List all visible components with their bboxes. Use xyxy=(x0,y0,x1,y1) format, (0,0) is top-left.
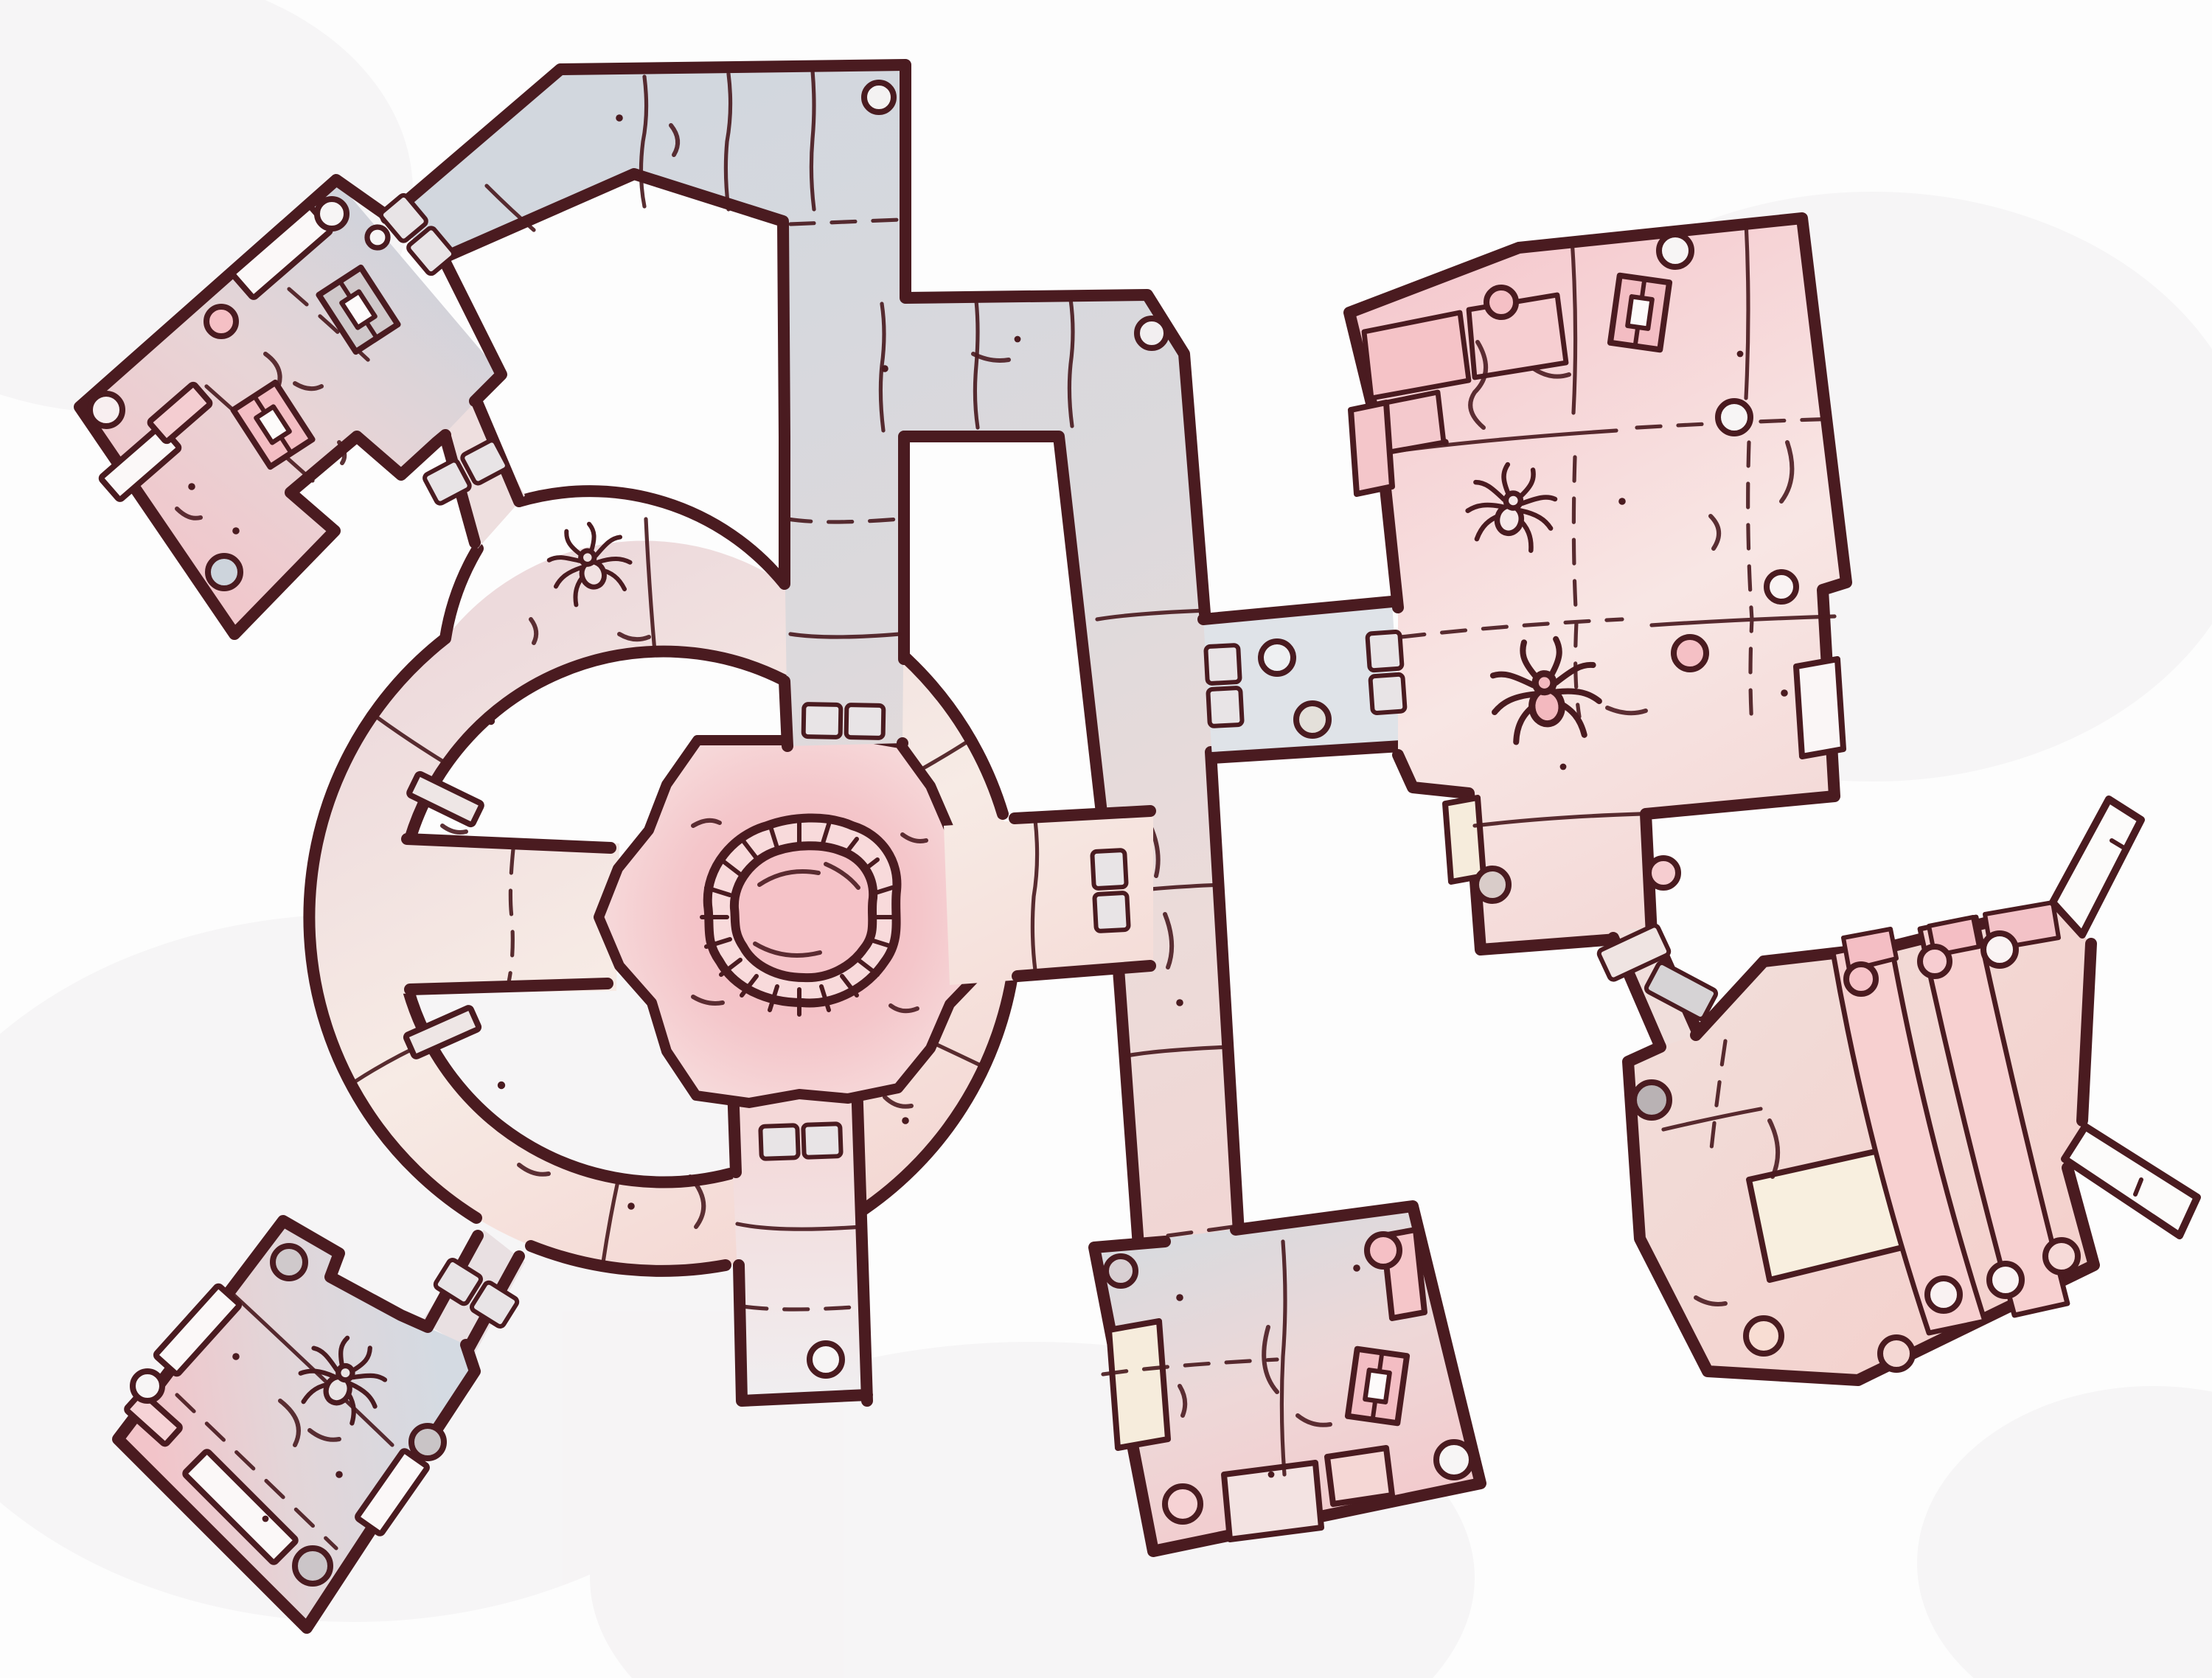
rubble-circle xyxy=(1261,641,1293,674)
rubble-circle xyxy=(317,199,347,229)
rubble-circle xyxy=(1137,318,1166,348)
dungeon-map xyxy=(0,0,2212,1678)
rubble-circle xyxy=(206,307,236,336)
rubble-circle xyxy=(367,227,388,248)
rubble-circle xyxy=(1296,703,1329,736)
rubble-circle xyxy=(810,1343,842,1376)
door-icon xyxy=(1610,276,1669,350)
dungeon-map-image xyxy=(0,0,2212,1678)
south-stub-floor xyxy=(728,1068,870,1407)
rubble-circle xyxy=(208,556,240,588)
pool-water xyxy=(734,846,873,978)
door-icon xyxy=(1348,1349,1407,1424)
west-spoke-floor xyxy=(386,835,619,994)
rubble-circle xyxy=(90,394,122,426)
rubble-circle xyxy=(864,83,894,112)
